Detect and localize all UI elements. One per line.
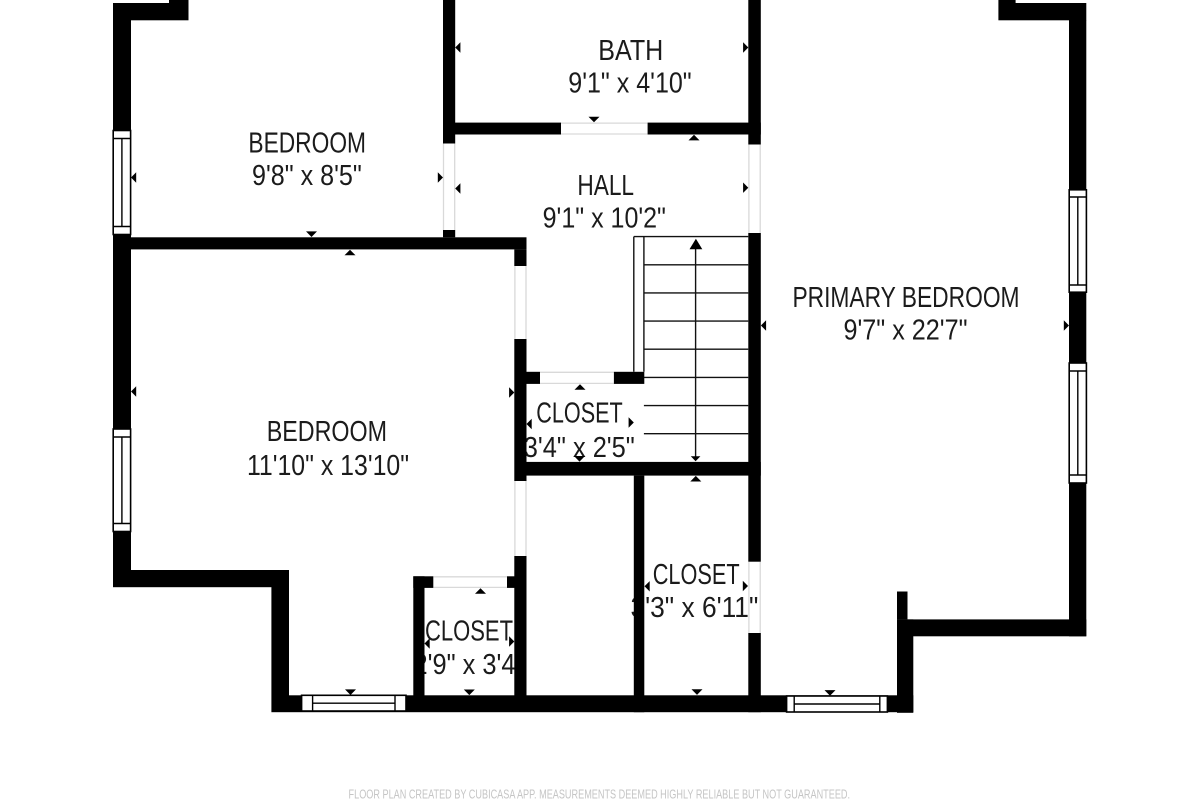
svg-text:BEDROOM: BEDROOM: [267, 416, 387, 448]
svg-text:CLOSET: CLOSET: [536, 397, 622, 429]
svg-text:HALL: HALL: [577, 170, 634, 202]
svg-text:BATH: BATH: [598, 35, 663, 67]
svg-text:9'7" x 22'7": 9'7" x 22'7": [844, 314, 968, 346]
svg-text:CLOSET: CLOSET: [425, 616, 513, 648]
svg-text:9'8" x 8'5": 9'8" x 8'5": [252, 160, 362, 192]
svg-text:2'9" x 3'4": 2'9" x 3'4": [414, 649, 525, 681]
svg-text:9'1" x 10'2": 9'1" x 10'2": [543, 203, 666, 235]
svg-text:9'1" x 4'10": 9'1" x 4'10": [568, 68, 691, 100]
svg-text:CLOSET: CLOSET: [653, 559, 740, 591]
svg-text:3'3" x 6'11": 3'3" x 6'11": [631, 592, 759, 624]
svg-text:PRIMARY BEDROOM: PRIMARY BEDROOM: [792, 282, 1019, 314]
svg-text:FLOOR PLAN CREATED BY CUBICASA: FLOOR PLAN CREATED BY CUBICASA APP. MEAS…: [349, 786, 851, 800]
svg-text:BEDROOM: BEDROOM: [248, 128, 366, 160]
svg-text:11'10" x 13'10": 11'10" x 13'10": [247, 450, 409, 482]
